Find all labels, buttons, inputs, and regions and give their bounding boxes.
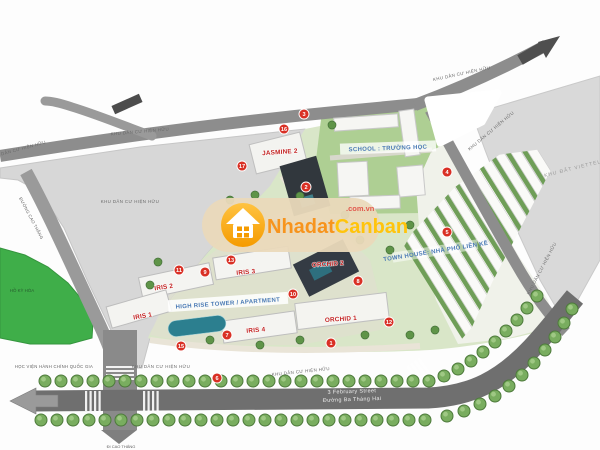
tree-icon: [407, 375, 419, 387]
tree-icon: [55, 375, 67, 387]
tree-icon: [296, 336, 304, 344]
tree-icon: [295, 375, 307, 387]
tree-icon: [458, 405, 470, 417]
tree-icon: [243, 414, 255, 426]
tree-icon: [516, 369, 528, 381]
tree-icon: [423, 375, 435, 387]
tree-icon: [511, 314, 523, 326]
tree-icon: [500, 325, 512, 337]
map-marker-number: 6: [215, 376, 218, 382]
house-icon-body: [233, 224, 253, 238]
tree-icon: [328, 121, 336, 129]
tree-icon: [71, 375, 83, 387]
map-marker: 3: [299, 109, 309, 119]
watermark-brand-part2: Canban: [335, 216, 408, 238]
map-marker-number: 11: [176, 268, 182, 274]
tree-icon: [371, 414, 383, 426]
school-building: [337, 161, 369, 197]
map-marker: 15: [176, 341, 186, 351]
master-plan-screenshot: KHU DÂN CƯ HIỆN HỮU KHU DÂN CƯ HIỆN HỮU …: [0, 0, 600, 450]
tree-icon: [489, 336, 501, 348]
tree-icon: [361, 331, 369, 339]
map-marker: 13: [226, 255, 236, 265]
map-marker-number: 16: [281, 127, 287, 133]
tree-icon: [167, 375, 179, 387]
tree-icon: [465, 355, 477, 367]
map-marker: 4: [442, 167, 452, 177]
map-marker-number: 5: [445, 230, 448, 236]
map-marker-number: 12: [386, 320, 392, 326]
tree-icon: [528, 357, 540, 369]
watermark-brand-part1: Nhadat: [267, 216, 335, 238]
map-marker-number: 8: [356, 279, 359, 285]
tree-icon: [103, 375, 115, 387]
tree-icon: [549, 331, 561, 343]
tree-icon: [199, 375, 211, 387]
tree-icon: [147, 414, 159, 426]
tree-icon: [531, 290, 543, 302]
tree-icon: [359, 375, 371, 387]
tree-icon: [51, 414, 63, 426]
zone-label: KHU DÂN CƯ HIỆN HỮU: [101, 199, 160, 204]
tree-icon: [275, 414, 287, 426]
tree-icon: [99, 414, 111, 426]
tree-icon: [307, 414, 319, 426]
tree-icon: [259, 414, 271, 426]
map-marker-number: 15: [178, 344, 184, 350]
tree-icon: [323, 414, 335, 426]
tree-icon: [35, 414, 47, 426]
tree-icon: [146, 281, 154, 289]
tree-icon: [163, 414, 175, 426]
tree-icon: [539, 344, 551, 356]
tree-icon: [355, 414, 367, 426]
tree-icon: [431, 326, 439, 334]
tree-icon: [179, 414, 191, 426]
ky-hoa-label: HỒ KỲ HÒA: [10, 288, 34, 293]
tree-icon: [135, 375, 147, 387]
tree-icon: [566, 303, 578, 315]
tree-icon: [311, 375, 323, 387]
tree-icon: [503, 380, 515, 392]
map-marker-number: 1: [329, 341, 332, 347]
tree-icon: [131, 414, 143, 426]
tree-icon: [195, 414, 207, 426]
school-building: [397, 165, 426, 197]
tree-icon: [151, 375, 163, 387]
map-marker-number: 2: [304, 185, 307, 191]
tree-icon: [115, 414, 127, 426]
map-marker: 11: [174, 265, 184, 275]
map-marker-number: 9: [203, 270, 206, 276]
tree-icon: [391, 375, 403, 387]
tree-icon: [403, 414, 415, 426]
map-marker: 16: [279, 124, 289, 134]
map-marker: 7: [222, 330, 232, 340]
map-marker: 9: [200, 267, 210, 277]
tree-icon: [387, 414, 399, 426]
to-cao-thang-label: ĐI CAO THẮNG: [107, 444, 136, 449]
tree-icon: [474, 398, 486, 410]
master-plan-map: KHU DÂN CƯ HIỆN HỮU KHU DÂN CƯ HIỆN HỮU …: [0, 0, 600, 450]
tree-icon: [183, 375, 195, 387]
tree-icon: [39, 375, 51, 387]
tree-icon: [231, 375, 243, 387]
tree-icon: [87, 375, 99, 387]
watermark-domain: .com.vn: [346, 204, 375, 213]
tree-icon: [558, 317, 570, 329]
tree-icon: [256, 341, 264, 349]
tree-icon: [441, 410, 453, 422]
watermark-brand: NhadatCanban: [267, 216, 408, 238]
tree-icon: [227, 414, 239, 426]
tree-icon: [419, 414, 431, 426]
map-marker-number: 17: [239, 164, 245, 170]
tree-icon: [119, 375, 131, 387]
tree-icon: [327, 375, 339, 387]
tree-icon: [279, 375, 291, 387]
tree-icon: [406, 331, 414, 339]
tree-icon: [251, 191, 259, 199]
tree-icon: [452, 363, 464, 375]
map-marker-number: 10: [290, 292, 296, 298]
tree-icon: [247, 375, 259, 387]
tree-icon: [375, 375, 387, 387]
map-marker: 10: [288, 289, 298, 299]
tree-icon: [154, 258, 162, 266]
tree-icon: [438, 370, 450, 382]
map-marker: 6: [212, 373, 222, 383]
tree-icon: [489, 390, 501, 402]
tree-icon: [291, 414, 303, 426]
map-marker: 8: [353, 276, 363, 286]
tree-icon: [521, 302, 533, 314]
tree-icon: [477, 346, 489, 358]
tree-icon: [343, 375, 355, 387]
tree-icon: [339, 414, 351, 426]
map-marker: 12: [384, 317, 394, 327]
map-marker-number: 7: [225, 333, 228, 339]
tree-icon: [67, 414, 79, 426]
academy-label: HỌC VIỆN HÀNH CHÍNH QUỐC GIA: [15, 364, 93, 369]
map-marker: 1: [326, 338, 336, 348]
map-marker: 5: [442, 227, 452, 237]
tree-icon: [211, 414, 223, 426]
map-marker-number: 13: [228, 258, 234, 264]
tree-icon: [206, 336, 214, 344]
map-marker: 17: [237, 161, 247, 171]
zone-label: KHU DÂN CƯ HIỆN HỮU: [132, 364, 191, 369]
map-marker-number: 3: [302, 112, 305, 118]
map-marker: 2: [301, 182, 311, 192]
tree-icon: [83, 414, 95, 426]
